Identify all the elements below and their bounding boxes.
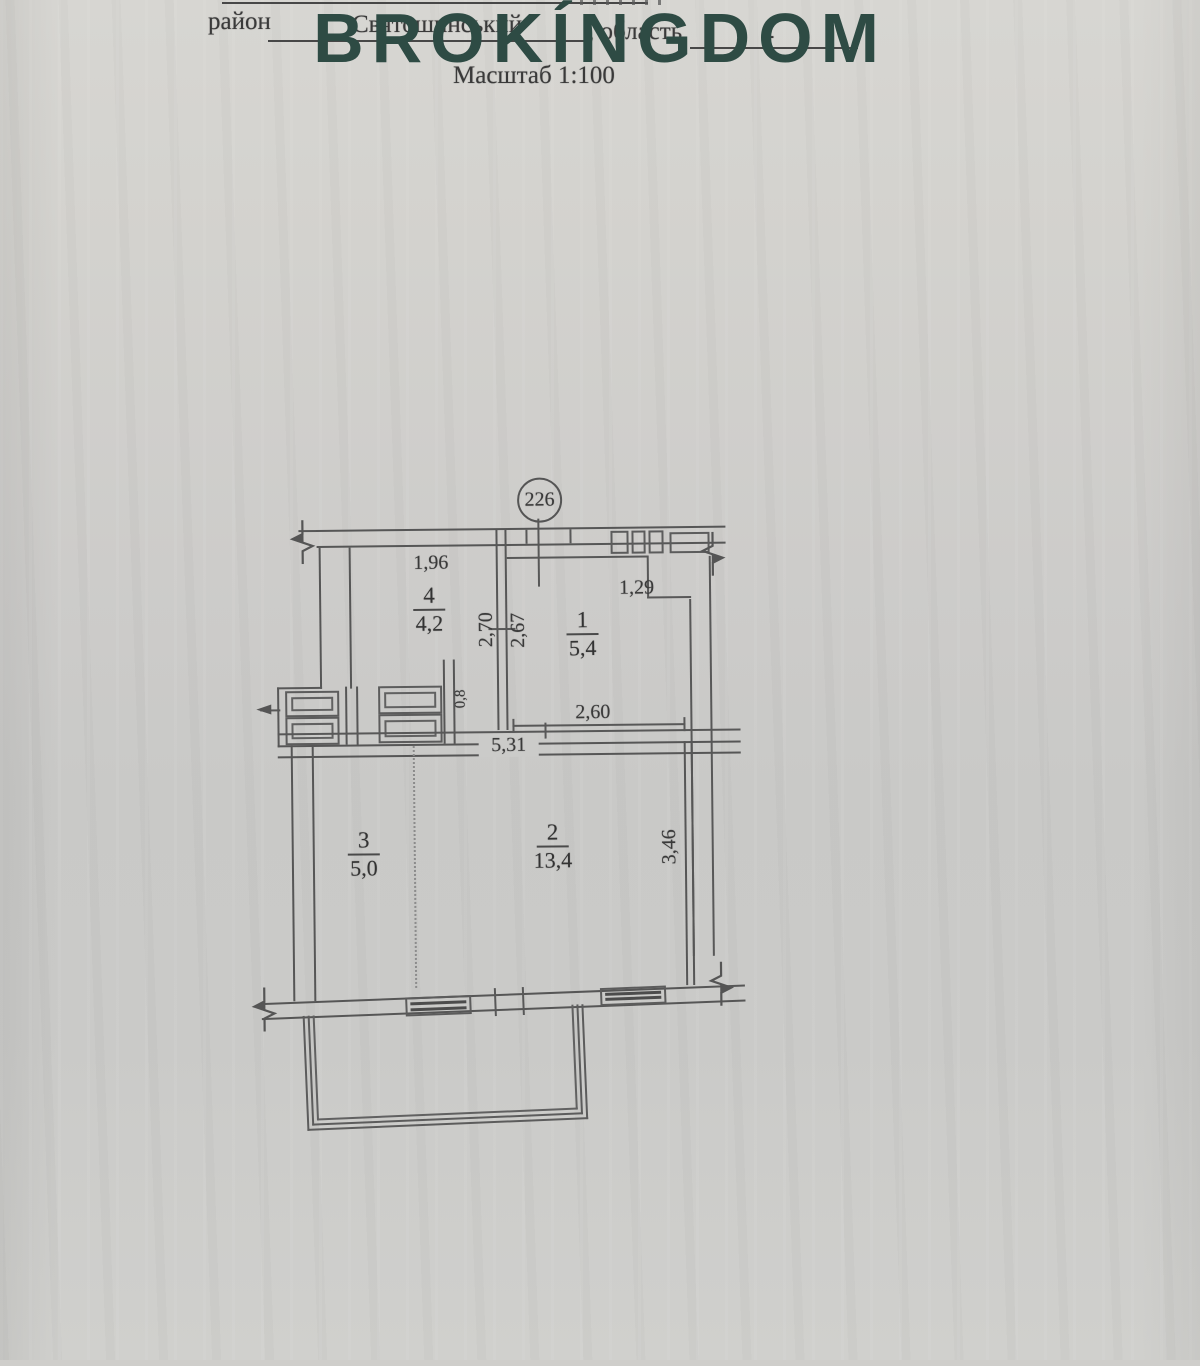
- break-mark-top-left: [289, 520, 315, 564]
- dim-260: 2,60: [565, 701, 620, 725]
- room-1-label: 1 5,4: [550, 608, 615, 662]
- room-4-label: 4 4,2: [395, 583, 464, 637]
- floor-plan: 226: [0, 0, 1200, 1366]
- niche-left-line: [277, 687, 280, 747]
- dim-346: 3,46: [658, 822, 682, 872]
- window-2: [600, 986, 667, 1007]
- corridor-top-line: [507, 555, 649, 558]
- closet-b1-inner: [384, 692, 436, 709]
- wall-room2-right: [684, 741, 696, 985]
- balcony-rail-inner: [313, 1005, 578, 1121]
- dim-531: 5,31: [479, 734, 539, 758]
- dim531-tick: [544, 723, 546, 739]
- wall-left-lower: [291, 745, 317, 1001]
- room-2-area: 13,4: [534, 847, 573, 872]
- closet-a2-inner: [291, 723, 333, 739]
- room-2-number: 2: [537, 820, 569, 847]
- left-dim-arrow: [256, 704, 271, 714]
- break-mark-bottom-right: [708, 961, 734, 1007]
- vent-shaft-2: [631, 531, 645, 554]
- closet-divider-wall: [345, 687, 359, 745]
- vent-shaft-3: [648, 530, 663, 553]
- wall-top: [316, 526, 725, 548]
- room-3-number: 3: [348, 828, 380, 855]
- zone-dotted-divider: [413, 746, 418, 988]
- break-mark-bottom-left: [251, 986, 277, 1032]
- room-4-area: 4,2: [416, 611, 444, 636]
- dim-270: 2,70: [475, 605, 499, 655]
- wall-left-upper: [319, 548, 352, 689]
- room-1-area: 5,4: [569, 635, 597, 660]
- axis-circle: 226: [517, 477, 562, 522]
- wall-right-outer-line: [709, 556, 715, 956]
- niche-top-line: [277, 687, 322, 689]
- room-3-area: 5,0: [350, 855, 378, 880]
- closet-a2: [285, 717, 339, 746]
- break-mark-top-right: [699, 532, 725, 576]
- axis-number: 226: [524, 488, 554, 510]
- dim-08: 0,8: [452, 679, 469, 719]
- dim-196: 1,96: [402, 551, 460, 575]
- room-2-label: 2 13,4: [513, 820, 592, 874]
- wall-top-joint-1: [525, 530, 527, 544]
- room-3-label: 3 5,0: [332, 828, 397, 882]
- closet-a1-inner: [291, 697, 333, 711]
- window-2-glazing: [605, 991, 661, 1001]
- dim-129: 1,29: [609, 576, 664, 600]
- brokingdom-watermark: BROKÍNGDOM: [0, 0, 1200, 77]
- room-4-number: 4: [413, 584, 445, 611]
- room-1-number: 1: [566, 608, 598, 635]
- scanned-page: район Святошинський , область - Масштаб …: [0, 0, 1200, 1360]
- closet-b2: [378, 714, 442, 744]
- closet-b1: [378, 686, 442, 715]
- dim-267: 2,67: [507, 605, 531, 655]
- closet-b2-inner: [384, 720, 436, 738]
- vent-shaft-1: [610, 531, 628, 554]
- wall-top-joint-2: [569, 529, 571, 543]
- balcony: [303, 1004, 589, 1131]
- closet-a1: [285, 691, 339, 718]
